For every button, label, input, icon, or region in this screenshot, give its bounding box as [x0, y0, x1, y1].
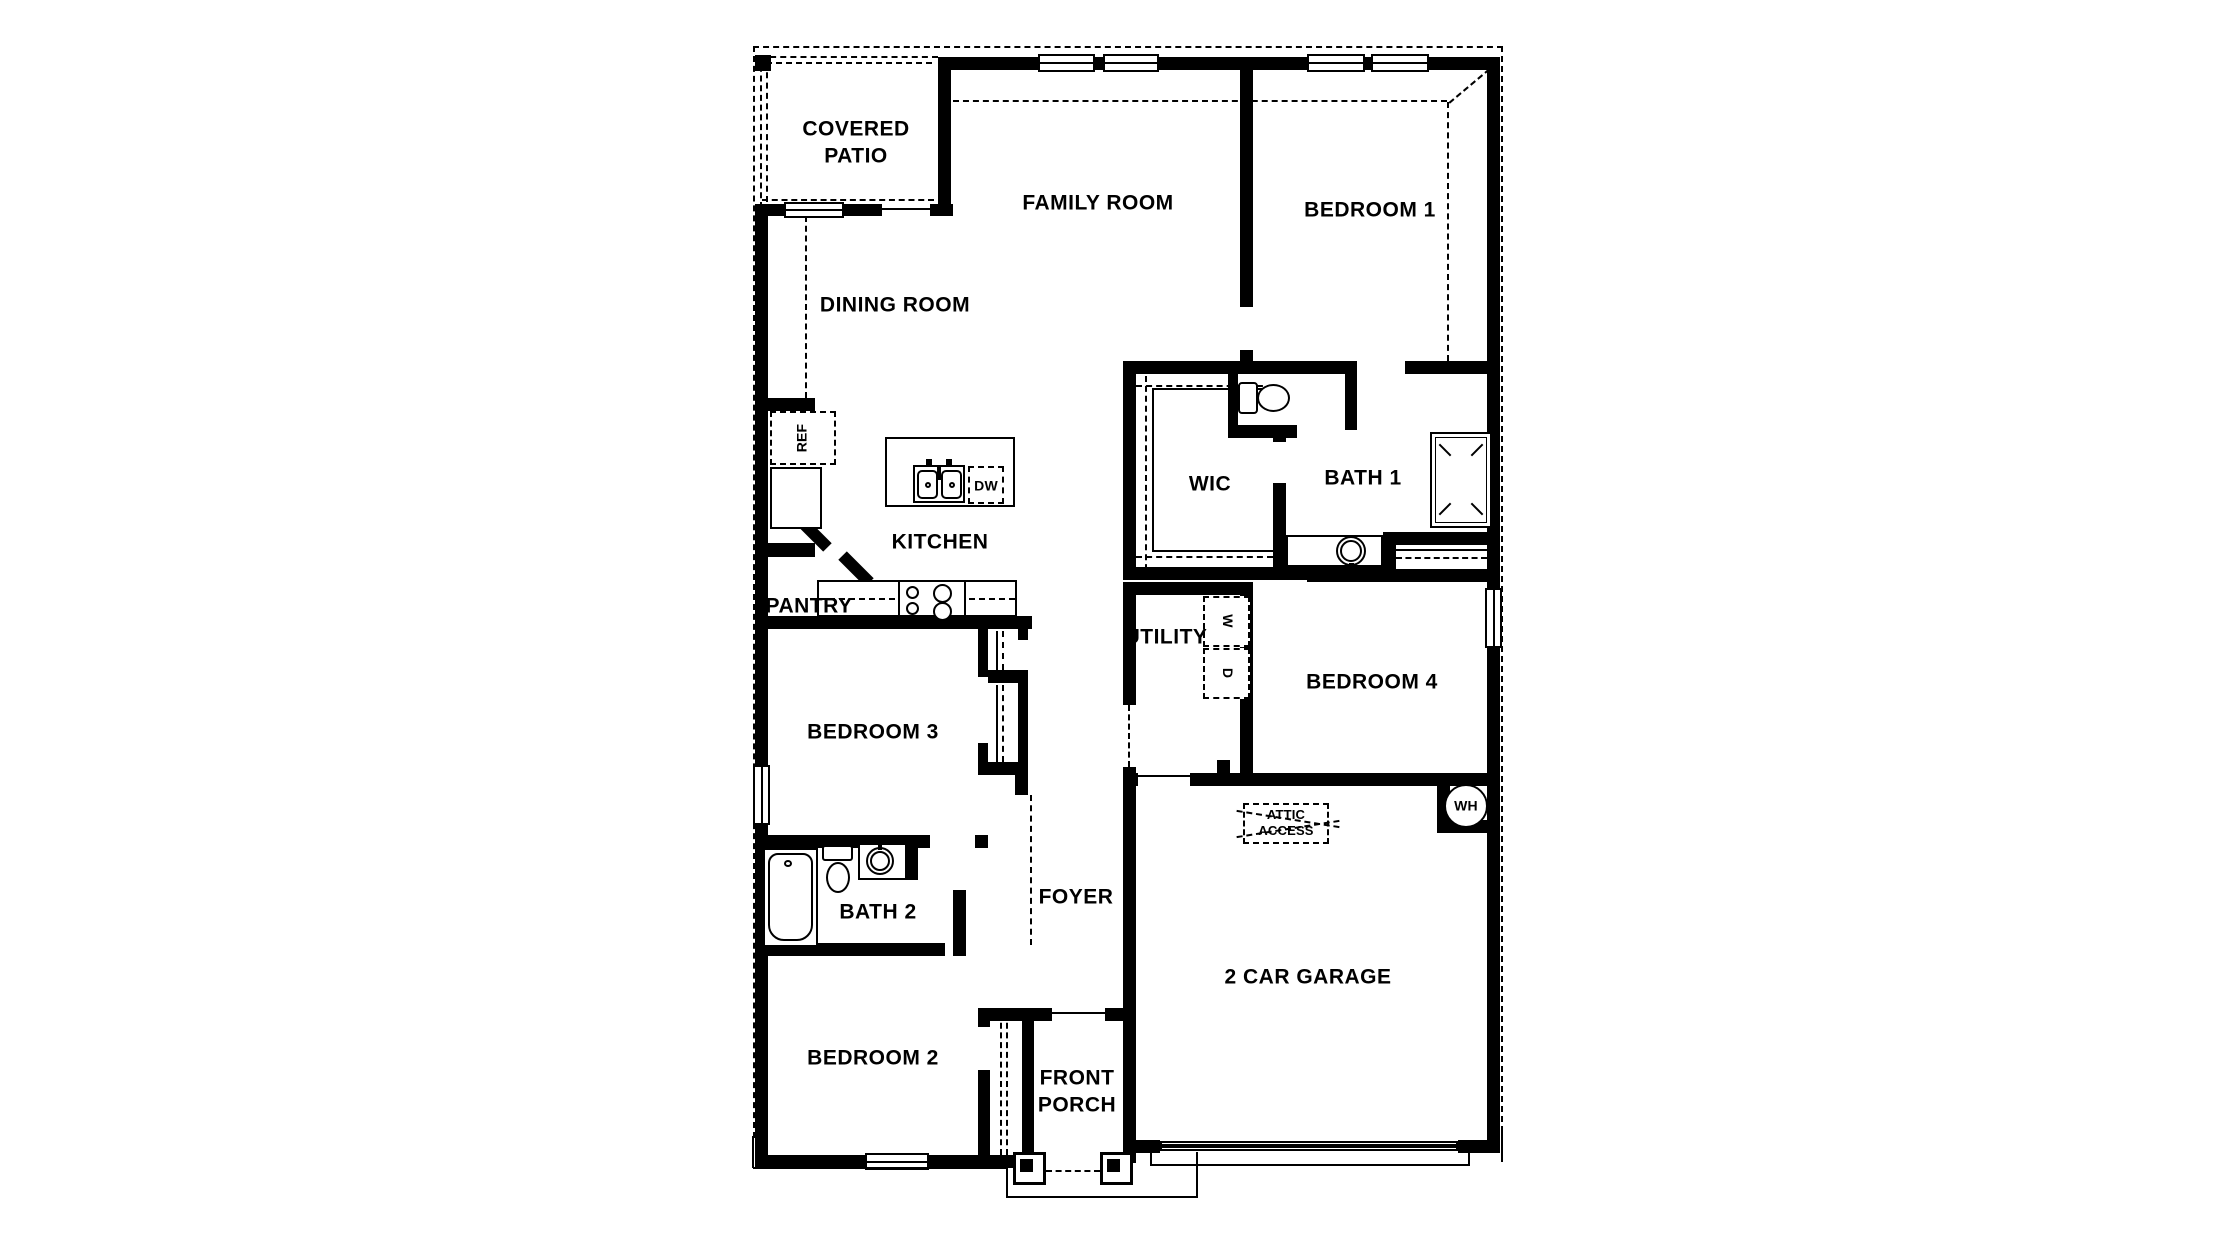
dryer-label: D: [1218, 668, 1236, 678]
faucet-icon: [937, 466, 941, 480]
foundation-line: [752, 1136, 754, 1168]
closet-shelf-line: [1000, 1013, 1002, 1155]
dishwasher-label: DW: [974, 477, 998, 495]
washer-label: W: [1218, 614, 1236, 627]
wall: [755, 55, 771, 71]
wall: [978, 762, 1028, 775]
wall: [1123, 786, 1136, 1163]
toilet-tank: [822, 845, 853, 861]
window: [1371, 54, 1429, 72]
closet-shelf-line: [1396, 549, 1487, 551]
refrigerator-label: REF: [793, 424, 811, 453]
room-label-front-porch: FRONT PORCH: [1038, 1065, 1116, 1120]
vanity-counter: [1286, 535, 1383, 567]
room-label-pantry: PANTRY: [766, 592, 853, 619]
closet-shelf-line: [1002, 685, 1004, 762]
window: [1307, 54, 1365, 72]
wall: [1123, 773, 1138, 786]
window: [1485, 588, 1502, 648]
faucet-icon: [878, 843, 882, 850]
wall: [1123, 582, 1253, 595]
room-label-bedroom-3: BEDROOM 3: [807, 718, 939, 745]
room-label-covered-patio: COVERED PATIO: [802, 116, 909, 171]
wall: [755, 398, 815, 411]
wall: [953, 890, 966, 943]
door-opening: [880, 208, 932, 210]
room-label-bath-1: BATH 1: [1324, 464, 1401, 491]
wall: [1018, 670, 1028, 775]
wall: [1240, 70, 1253, 307]
wall: [948, 57, 1040, 70]
porch-column: [1100, 1152, 1133, 1185]
counter: [770, 467, 822, 529]
room-label-kitchen: KITCHEN: [892, 528, 989, 555]
wall: [975, 835, 988, 848]
room-label-bedroom-2: BEDROOM 2: [807, 1044, 939, 1071]
floor-plan: DW REF W D ATTIC ACCESS WH: [0, 0, 2230, 1254]
wall: [1123, 374, 1136, 580]
front-door-opening: [1052, 1012, 1105, 1014]
ceiling-line: [1030, 795, 1032, 945]
wall: [978, 1013, 990, 1027]
closet-shelf-line: [1396, 557, 1487, 559]
water-heater-label: WH: [1454, 797, 1478, 815]
toilet-bowl: [1257, 384, 1290, 412]
porch-slab-line: [1006, 1196, 1198, 1198]
foundation-line: [753, 1167, 1008, 1169]
burner-icon: [933, 584, 952, 603]
room-label-family-room: FAMILY ROOM: [1022, 189, 1173, 216]
wall: [1157, 57, 1309, 70]
patio-door: [784, 202, 844, 218]
wall: [755, 204, 768, 767]
room-label-dining-room: DINING ROOM: [820, 291, 970, 318]
ceiling-line: [1447, 102, 1449, 361]
wall: [1273, 483, 1286, 567]
room-label-garage: 2 CAR GARAGE: [1224, 963, 1391, 990]
closet-shelf-line: [1002, 631, 1004, 670]
porch-step-line: [1046, 1170, 1100, 1172]
wall: [1015, 775, 1028, 795]
room-label-wic: WIC: [1189, 470, 1231, 497]
wall: [1405, 361, 1487, 374]
wall: [1240, 350, 1253, 361]
wall: [842, 204, 882, 216]
closet-shelf-line: [1006, 1013, 1008, 1155]
drain-icon: [949, 482, 955, 488]
faucet-icon: [946, 459, 952, 465]
patio-edge-line: [762, 199, 934, 201]
closet-rod-line: [996, 685, 998, 762]
door-opening: [1253, 574, 1307, 576]
wall: [930, 204, 953, 216]
wall: [1307, 569, 1487, 582]
toilet-bowl: [826, 862, 850, 893]
window: [1103, 54, 1159, 72]
porch-slab-line: [1196, 1152, 1198, 1198]
wall: [978, 1070, 990, 1155]
wall: [1190, 773, 1487, 786]
wall: [938, 57, 951, 216]
burner-icon: [906, 602, 919, 615]
patio-edge-line: [760, 56, 938, 58]
wall: [1487, 646, 1500, 1153]
wall: [1123, 361, 1357, 374]
room-label-utility: UTILITY: [1125, 623, 1208, 650]
closet-rod-line: [996, 631, 998, 670]
closet-shelf-line: [1145, 376, 1147, 580]
patio-edge-line: [766, 62, 932, 64]
roof-line: [753, 46, 1503, 48]
ceiling-line: [953, 100, 1447, 102]
door-opening: [1128, 705, 1130, 767]
room-label-bath-2: BATH 2: [839, 898, 916, 925]
wall: [1345, 374, 1357, 430]
bath-sink: [1340, 540, 1362, 562]
ceiling-line: [805, 216, 807, 398]
faucet-icon: [1349, 563, 1354, 569]
window: [753, 765, 770, 825]
apron-line: [1150, 1164, 1470, 1166]
drain-icon: [925, 482, 931, 488]
porch-column: [1013, 1152, 1046, 1185]
wall: [766, 204, 786, 216]
wall: [1396, 532, 1487, 545]
wall: [988, 670, 1018, 683]
wall: [755, 543, 815, 557]
room-label-foyer: FOYER: [1039, 883, 1114, 910]
patio-edge-line: [766, 62, 768, 202]
room-label-bedroom-4: BEDROOM 4: [1306, 668, 1438, 695]
burner-icon: [933, 602, 952, 621]
wall: [1022, 1013, 1034, 1155]
bath-sink: [870, 851, 890, 871]
patio-edge-line: [760, 56, 762, 208]
faucet-icon: [926, 459, 932, 465]
room-label-bedroom-1: BEDROOM 1: [1304, 196, 1436, 223]
burner-icon: [906, 586, 919, 599]
porch-slab-line: [1006, 1152, 1008, 1198]
toilet-tank: [1238, 382, 1258, 414]
attic-access-label: ATTIC ACCESS: [1258, 807, 1313, 840]
foundation-line: [1501, 1132, 1503, 1162]
wall: [1105, 1008, 1136, 1021]
closet-shelf-line: [1136, 556, 1273, 558]
wall: [1018, 629, 1028, 640]
wall: [953, 943, 966, 956]
garage-door-opening: [1138, 775, 1190, 777]
wall: [978, 629, 988, 677]
wall: [1217, 760, 1230, 773]
window: [1038, 54, 1095, 72]
wall: [1458, 1140, 1500, 1153]
wall: [907, 843, 918, 880]
drain-icon: [784, 860, 792, 867]
garage-door: [1160, 1146, 1458, 1151]
